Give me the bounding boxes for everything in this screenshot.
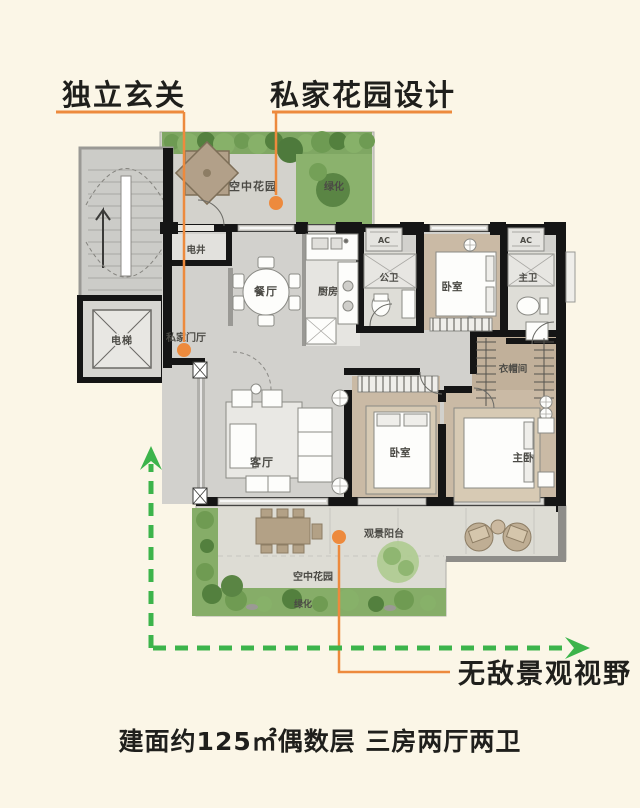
label-dining: 餐厅	[253, 284, 278, 298]
annotation-entrance-label: 独立玄关	[62, 72, 186, 114]
master-bedroom-furniture	[454, 396, 554, 502]
label-cloakroom: 衣帽间	[499, 363, 528, 375]
label-master-bedroom: 主卧	[513, 451, 534, 464]
label-shaft: 电井	[186, 244, 206, 256]
label-ac-left: AC	[378, 236, 390, 245]
label-greenery-top: 绿化	[324, 180, 344, 193]
elevator: 电梯	[80, 298, 164, 380]
annotation-private-garden-label: 私家花园设计	[270, 72, 456, 114]
leader-dot-garden	[269, 196, 283, 210]
label-bedroom-south: 卧室	[390, 446, 411, 459]
garden-tree	[377, 541, 419, 583]
label-bedroom-north: 卧室	[442, 280, 463, 293]
floorplan-page: 空中花园 绿化 电梯	[0, 0, 640, 808]
label-master-bath: 主卫	[518, 272, 538, 284]
label-sky-garden-bottom: 空中花园	[293, 570, 333, 583]
top-sky-garden: 空中花园 绿化	[160, 131, 375, 228]
stair-tower	[80, 148, 173, 306]
label-balcony: 观景阳台	[364, 527, 404, 540]
annotation-view-label: 无敌景观视野	[458, 652, 632, 691]
label-greenery-bottom: 绿化	[294, 598, 312, 610]
floorplan-caption: 建面约125㎡偶数层 三房两厅两卫	[0, 722, 640, 758]
leader-dot-foyer	[177, 343, 191, 357]
label-kitchen: 厨房	[318, 285, 338, 298]
label-sky-garden-top: 空中花园	[229, 179, 277, 193]
leader-dot-balcony	[332, 530, 346, 544]
label-living: 客厅	[249, 455, 274, 469]
label-guest-bath: 公卫	[379, 273, 399, 284]
label-elevator: 电梯	[111, 334, 133, 347]
label-foyer: 私家门厅	[165, 331, 206, 344]
label-ac-right: AC	[520, 236, 532, 245]
